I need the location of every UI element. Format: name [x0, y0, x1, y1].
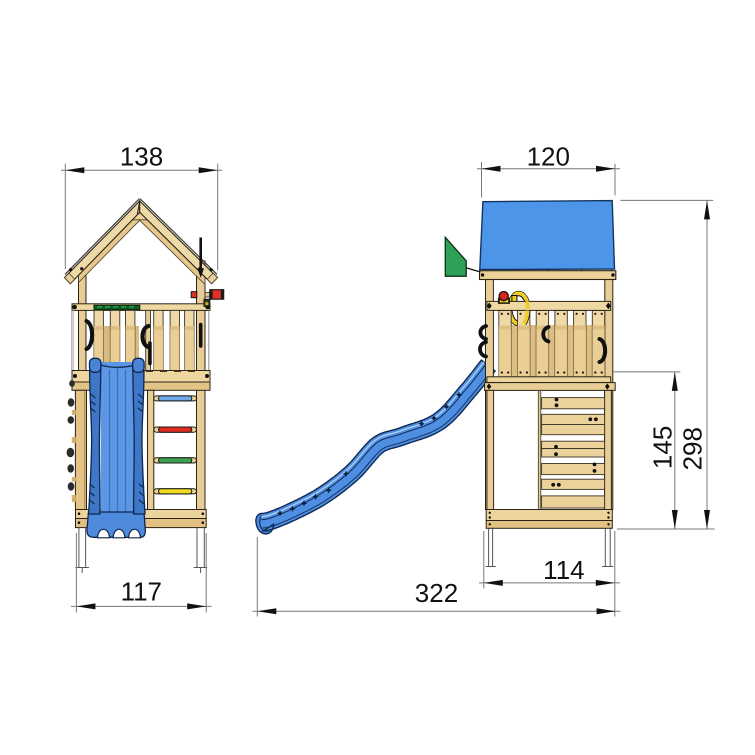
svg-text:114: 114 — [543, 555, 584, 585]
svg-text:120: 120 — [527, 142, 570, 172]
svg-text:145: 145 — [647, 426, 677, 469]
svg-text:138: 138 — [120, 142, 163, 172]
svg-text:298: 298 — [678, 427, 708, 470]
svg-text:322: 322 — [415, 578, 458, 608]
svg-text:117: 117 — [121, 577, 162, 607]
